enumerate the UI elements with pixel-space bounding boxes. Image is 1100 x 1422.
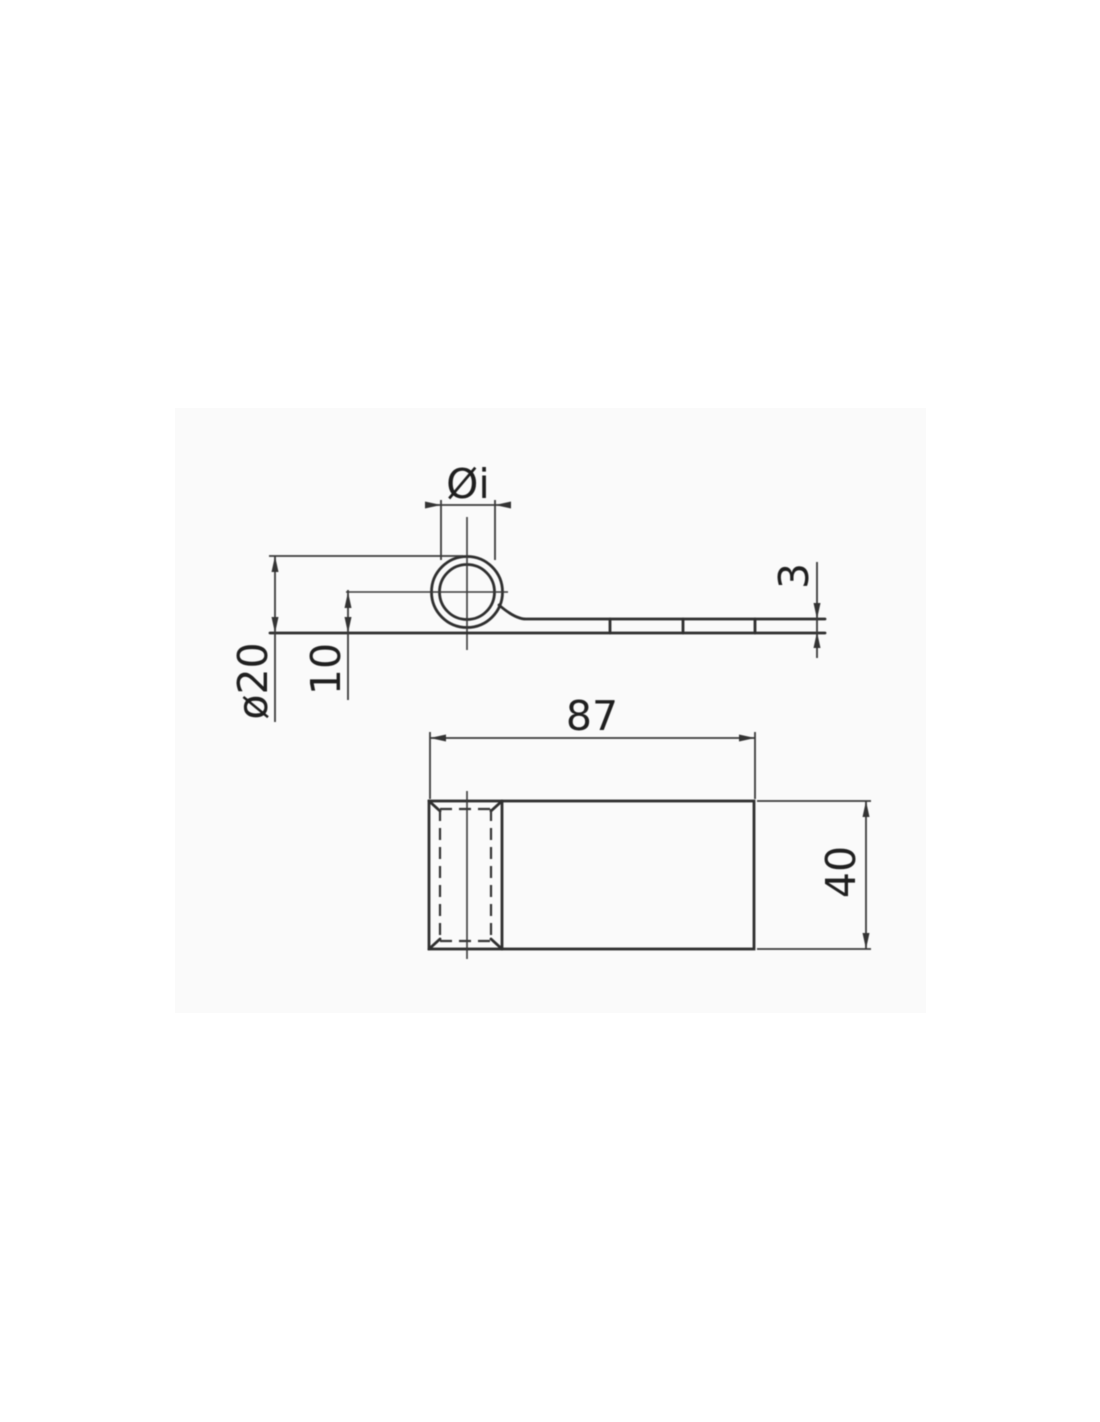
- dimension-width: 40: [757, 801, 871, 949]
- dimension-text-thickness: 3: [770, 563, 818, 589]
- dimension-text-width: 40: [817, 846, 865, 898]
- arrowhead-icon: [345, 617, 352, 633]
- chamfer-diagonal: [429, 939, 440, 949]
- dimension-thickness: 3: [770, 562, 821, 658]
- dimension-text-length: 87: [566, 692, 618, 740]
- arrowhead-icon: [739, 735, 755, 742]
- arrowhead-icon: [814, 603, 821, 619]
- dimension-text-inner-diameter: Øi: [446, 460, 490, 508]
- arrowhead-icon: [272, 556, 279, 572]
- plan-view: 87 40: [429, 692, 871, 959]
- arrowhead-icon: [495, 502, 511, 509]
- dimension-length: 87: [430, 692, 755, 799]
- dimension-inner-diameter: Øi: [425, 460, 511, 560]
- dimension-center-height: 10: [302, 590, 352, 700]
- dimension-text-center-height: 10: [302, 643, 350, 695]
- leaf-outline: [429, 801, 754, 949]
- chamfer-diagonal: [429, 801, 440, 811]
- arrowhead-icon: [430, 735, 446, 742]
- dimension-outer-diameter: ø20: [229, 556, 463, 722]
- chamfer-diagonal: [491, 801, 502, 811]
- side-view: Øi ø20 10 3: [229, 460, 825, 722]
- leaf-top-edge: [499, 605, 825, 619]
- dimension-text-outer-diameter: ø20: [229, 642, 277, 719]
- arrowhead-icon: [425, 502, 441, 509]
- arrowhead-icon: [345, 592, 352, 608]
- arrowhead-icon: [814, 632, 821, 648]
- arrowhead-icon: [272, 617, 279, 633]
- arrowhead-icon: [863, 933, 870, 949]
- technical-drawing-svg: Øi ø20 10 3: [0, 0, 1100, 1422]
- chamfer-diagonal: [491, 939, 502, 949]
- arrowhead-icon: [863, 801, 870, 817]
